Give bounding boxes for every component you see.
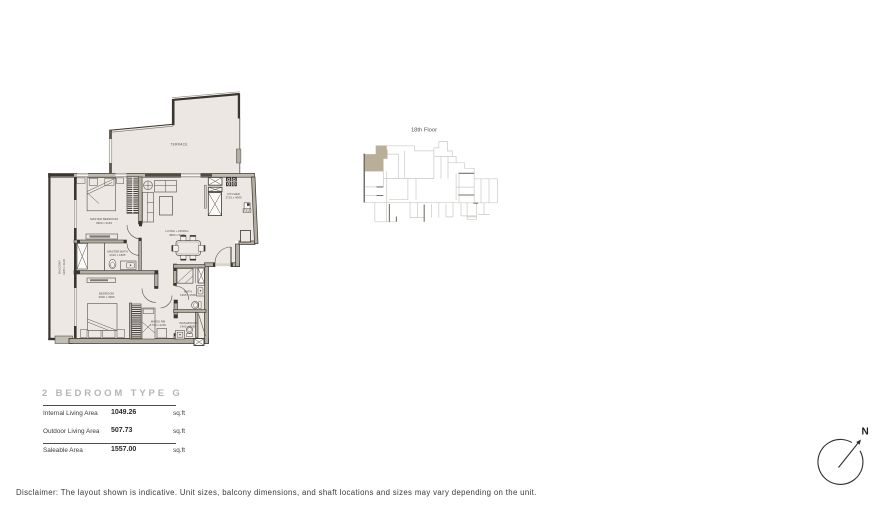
svg-text:3900 x 3145: 3900 x 3145 xyxy=(96,221,112,225)
svg-text:18th Floor: 18th Floor xyxy=(411,128,437,134)
svg-text:TERRACE: TERRACE xyxy=(170,143,187,147)
svg-text:1286 x 1140: 1286 x 1140 xyxy=(62,259,66,275)
svg-text:1905 x 2500: 1905 x 2500 xyxy=(180,293,196,297)
svg-text:1730 x 2230: 1730 x 2230 xyxy=(150,323,166,327)
svg-text:1400 x 2350: 1400 x 2350 xyxy=(180,325,196,329)
svg-text:3900 x 3680: 3900 x 3680 xyxy=(99,295,115,299)
svg-text:N: N xyxy=(862,427,869,438)
svg-text:3715 x 4090: 3715 x 4090 xyxy=(226,196,242,200)
svg-text:2140 x 1805: 2140 x 1805 xyxy=(110,253,126,257)
